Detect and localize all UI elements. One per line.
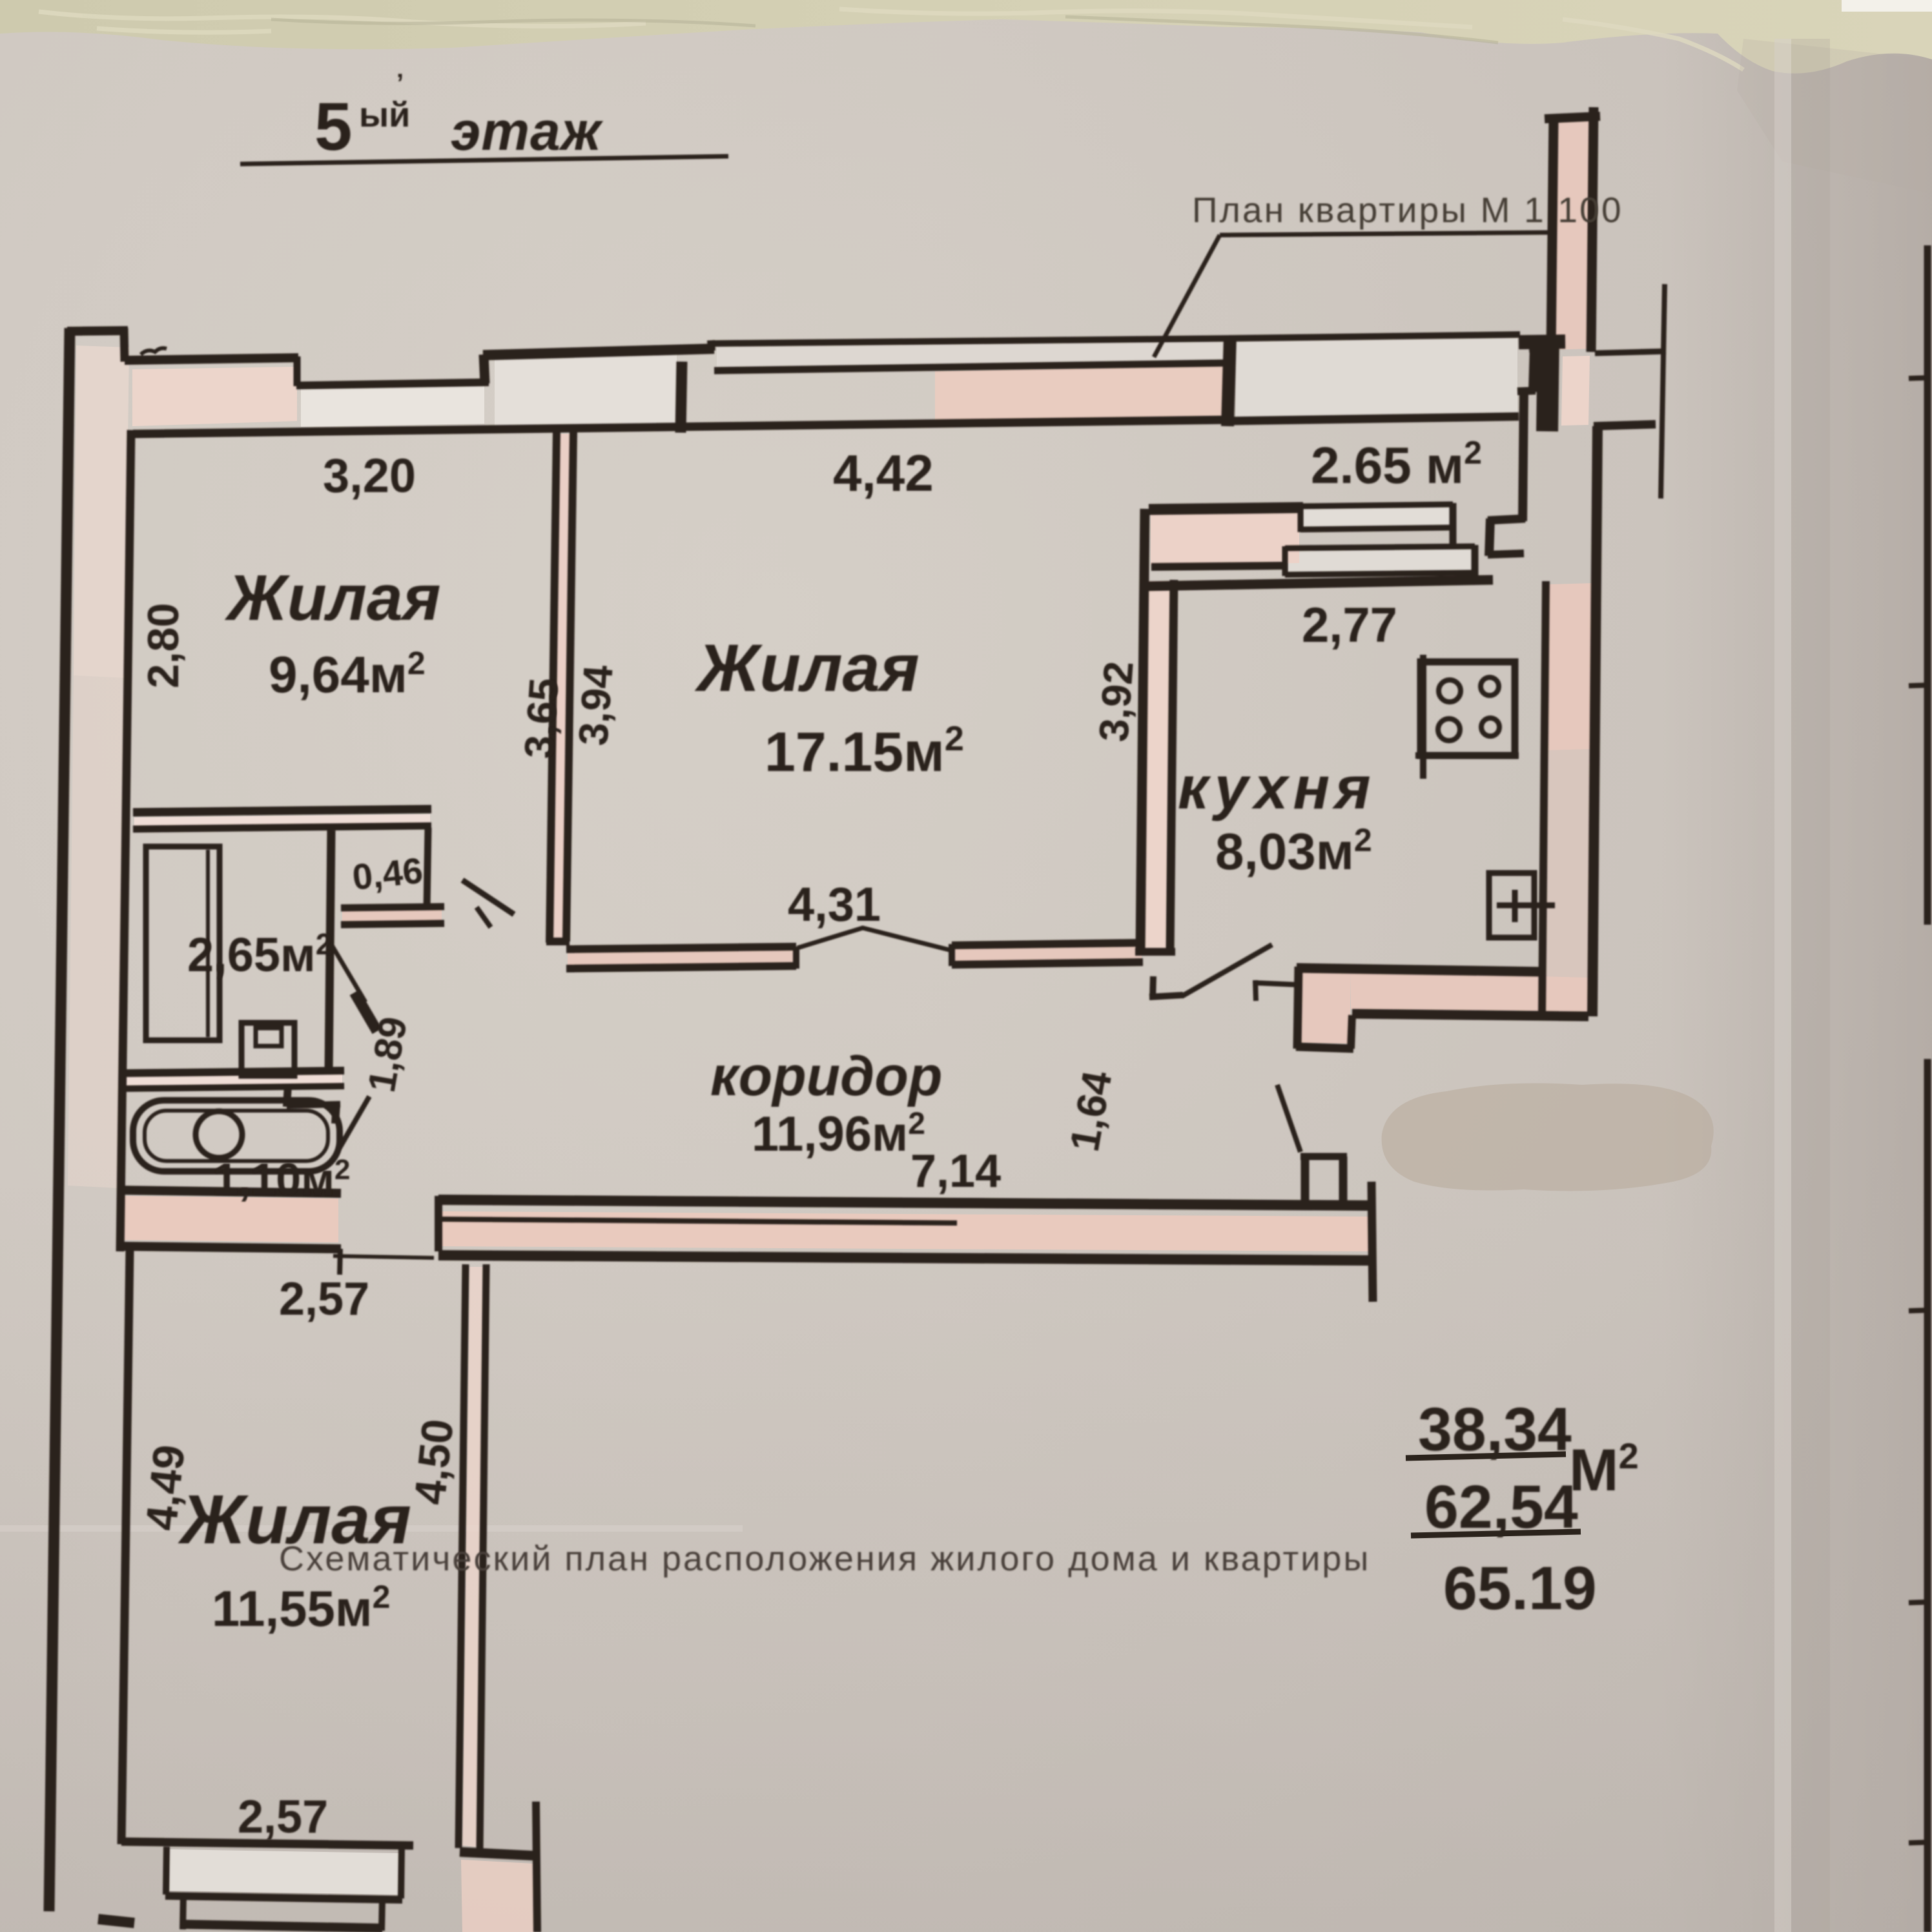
- svg-text:План квартиры М 1 100: План квартиры М 1 100: [1192, 190, 1623, 230]
- svg-text:Жилая: Жилая: [224, 562, 441, 634]
- svg-text:3,94: 3,94: [570, 663, 622, 747]
- svg-text:11,96м2: 11,96м2: [752, 1107, 925, 1162]
- svg-text:3,20: 3,20: [323, 449, 416, 502]
- svg-text:2,65м2: 2,65м2: [187, 927, 332, 981]
- svg-text:4,50: 4,50: [405, 1417, 462, 1507]
- svg-text:3,65: 3,65: [515, 677, 568, 760]
- svg-text:7,14: 7,14: [910, 1146, 1001, 1197]
- svg-text:4,42: 4,42: [833, 444, 934, 502]
- svg-text:’: ’: [396, 69, 404, 98]
- svg-text:5: 5: [314, 89, 352, 165]
- svg-text:2,57: 2,57: [279, 1273, 369, 1325]
- svg-text:8,03м2: 8,03м2: [1215, 822, 1372, 880]
- svg-text:2,80: 2,80: [139, 603, 188, 688]
- svg-text:0,46: 0,46: [351, 850, 425, 898]
- svg-text:этаж: этаж: [451, 101, 604, 161]
- svg-text:2,77: 2,77: [1302, 598, 1397, 653]
- svg-text:Жилая: Жилая: [694, 631, 920, 706]
- svg-text:2,57: 2,57: [238, 1791, 328, 1843]
- svg-text:17.15м2: 17.15м2: [765, 719, 964, 783]
- svg-text:Схематический план расположени: Схематический план расположения жилого д…: [279, 1539, 1370, 1578]
- svg-text:Жилая: Жилая: [178, 1480, 411, 1558]
- svg-text:ый: ый: [359, 96, 410, 134]
- svg-text:1,10м2: 1,10м2: [213, 1154, 351, 1204]
- svg-text:3,92: 3,92: [1090, 660, 1142, 743]
- svg-text:9,64м2: 9,64м2: [269, 645, 426, 703]
- svg-text:коридор: коридор: [710, 1045, 942, 1107]
- svg-text:кухня: кухня: [1178, 754, 1376, 821]
- svg-text:11,55м2: 11,55м2: [212, 1579, 390, 1637]
- svg-text:4,31: 4,31: [788, 878, 881, 931]
- svg-text:2.65 м2: 2.65 м2: [1311, 435, 1482, 494]
- svg-text:65.19: 65.19: [1443, 1554, 1597, 1623]
